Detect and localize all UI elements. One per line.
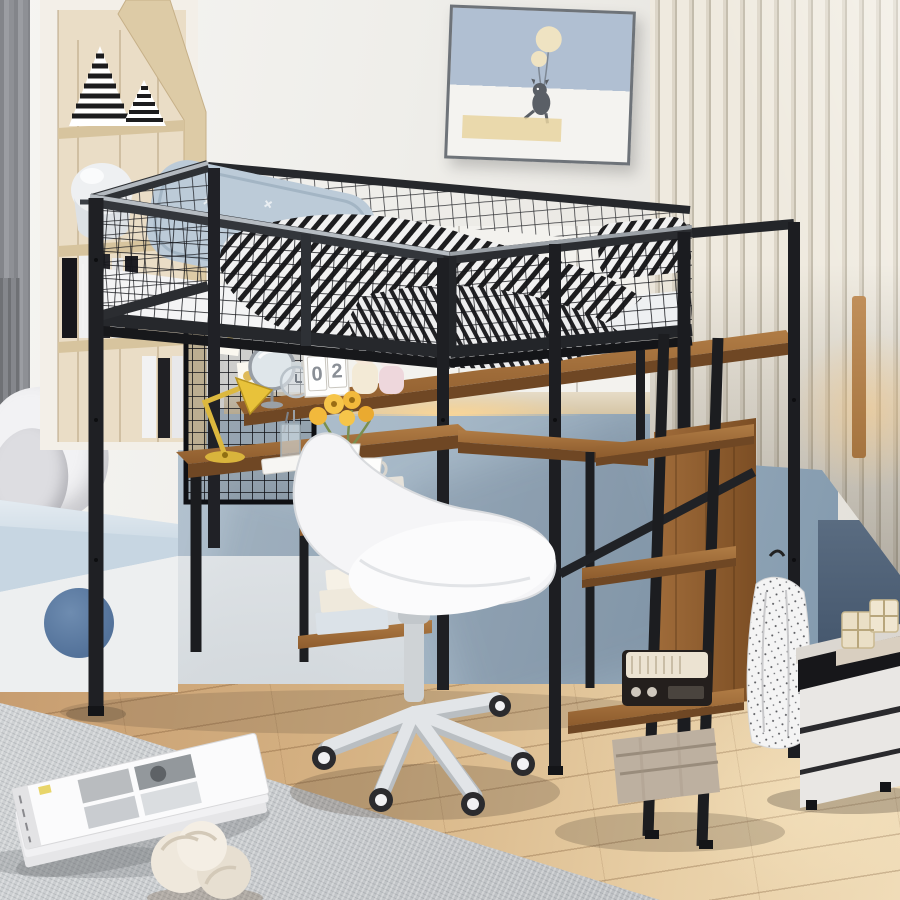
nightstand <box>796 600 900 810</box>
calendar-digit-1: 0 <box>311 363 323 386</box>
vintage-radio <box>622 650 712 706</box>
wood-crate <box>612 728 720 804</box>
bedroom-scene: 0 2 <box>0 0 900 900</box>
furniture-overlay: 0 2 <box>0 0 900 900</box>
calendar-digit-2: 2 <box>331 360 343 383</box>
